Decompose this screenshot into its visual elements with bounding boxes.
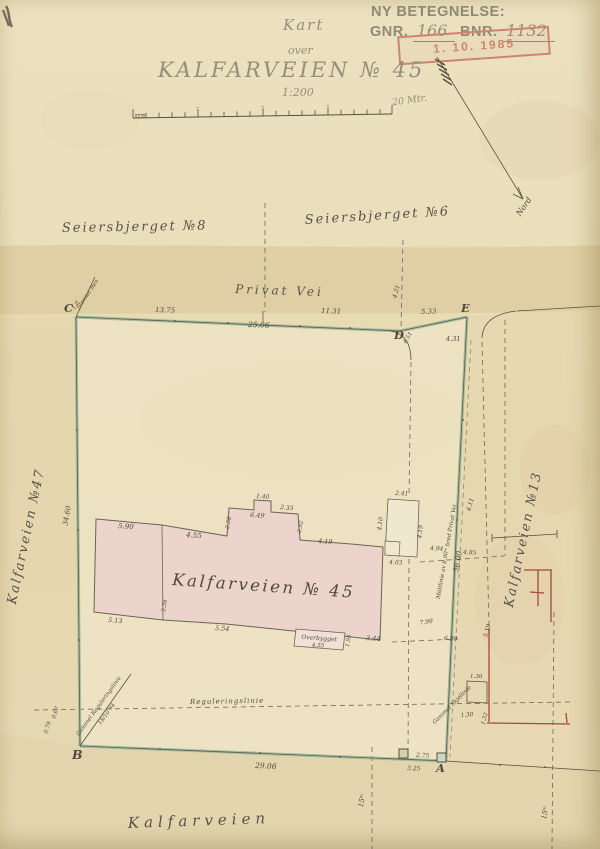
dim-e-south: 4.31 xyxy=(445,335,460,343)
point-b: B xyxy=(71,747,83,762)
dim-top-total: 25.06 xyxy=(247,320,270,330)
dim-b233: 2.33 xyxy=(279,504,294,512)
dim-b455: 4.55 xyxy=(185,531,203,540)
dim-right-494: 4.94 xyxy=(429,545,444,553)
dim-b344: 3.44 xyxy=(366,634,381,643)
dim-step-130a: 1.30 xyxy=(470,674,483,680)
road-band xyxy=(0,245,600,315)
overbygget-dim: 4.55 xyxy=(311,643,325,650)
dim-top-segment-1: 13.75 xyxy=(155,306,176,315)
dim-d-e: 5.33 xyxy=(421,307,437,316)
dim-step-130b: 1.30 xyxy=(461,712,474,719)
dim-b419: 4.19 xyxy=(317,537,333,546)
dim-b590: 5.90 xyxy=(118,522,135,531)
regulation-line-label: Reguleringslinie xyxy=(189,697,264,706)
dim-b140: 1.40 xyxy=(256,493,270,501)
dim-annex-north: 2.41 xyxy=(394,490,409,498)
point-e: E xyxy=(460,301,470,315)
neighbor-seiersbjerget-8: Seiersbjerget №8 xyxy=(62,218,208,236)
survey-drawing: Nord xyxy=(0,0,600,849)
dim-a-north: 2.75 xyxy=(415,752,430,760)
dim-b513: 5.13 xyxy=(108,616,123,625)
dim-right-485: 4.85 xyxy=(462,549,477,557)
dim-south-side: 29.06 xyxy=(254,761,277,771)
dim-right-690: 6.90 xyxy=(444,635,458,642)
dim-b649: 6.49 xyxy=(250,511,265,520)
dim-b554: 5.54 xyxy=(215,624,230,633)
boundary-stone-1 xyxy=(399,749,408,758)
dim-top-segment-2: 11.31 xyxy=(321,307,341,316)
point-a: A xyxy=(435,761,445,775)
annex-structure xyxy=(385,499,419,557)
scanned-survey-map: NY BETEGNELSE: GNR. 166 BNR. 1132 1. 10.… xyxy=(0,0,600,849)
dim-a-south: 3.25 xyxy=(407,765,421,772)
point-d: D xyxy=(393,328,404,342)
dim-annex-south: 4.03 xyxy=(388,559,403,567)
